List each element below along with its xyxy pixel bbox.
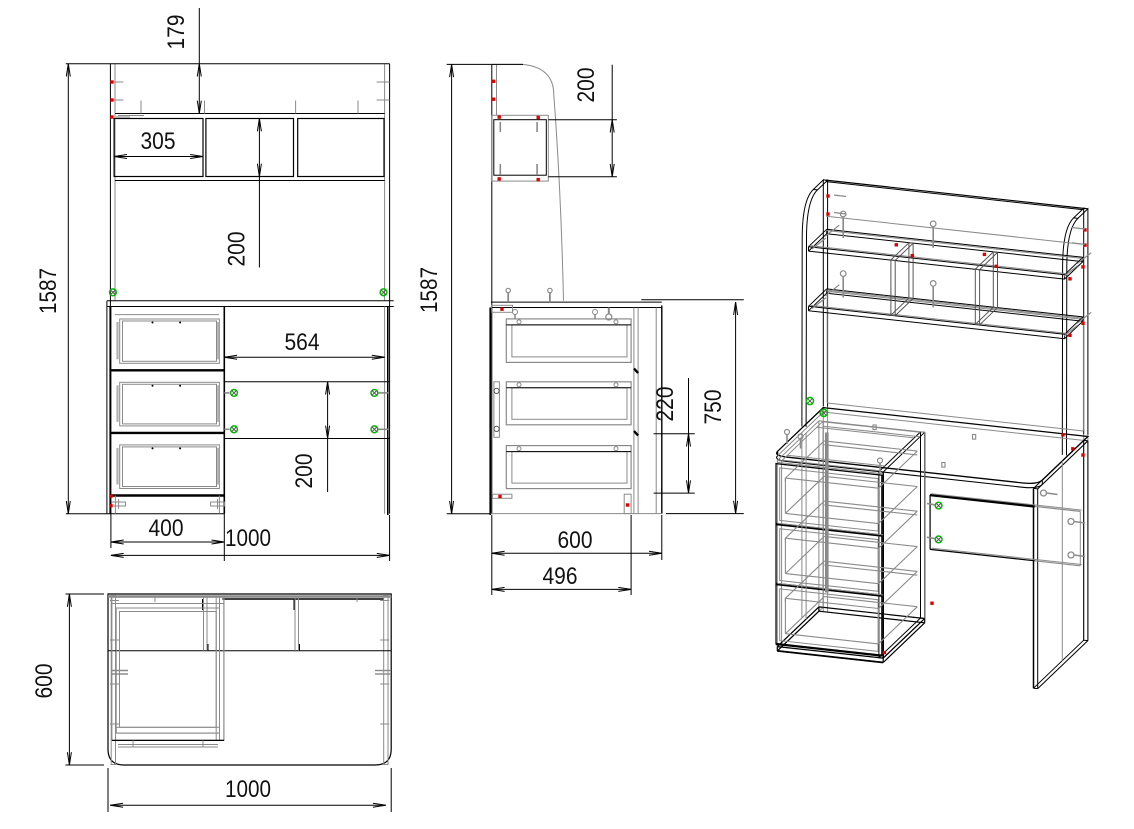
svg-text:1000: 1000 xyxy=(225,776,271,803)
svg-text:200: 200 xyxy=(291,454,318,489)
svg-text:1587: 1587 xyxy=(416,267,443,313)
svg-text:600: 600 xyxy=(558,527,593,554)
svg-text:179: 179 xyxy=(163,15,190,50)
svg-text:400: 400 xyxy=(149,515,184,542)
svg-text:200: 200 xyxy=(224,232,251,267)
svg-text:220: 220 xyxy=(652,387,679,422)
svg-text:750: 750 xyxy=(700,390,727,425)
svg-text:564: 564 xyxy=(285,329,320,356)
svg-text:1000: 1000 xyxy=(225,525,271,552)
svg-text:200: 200 xyxy=(573,68,600,103)
svg-text:600: 600 xyxy=(31,664,58,699)
svg-text:305: 305 xyxy=(141,128,176,155)
svg-text:1587: 1587 xyxy=(35,268,62,314)
svg-text:496: 496 xyxy=(543,563,578,590)
